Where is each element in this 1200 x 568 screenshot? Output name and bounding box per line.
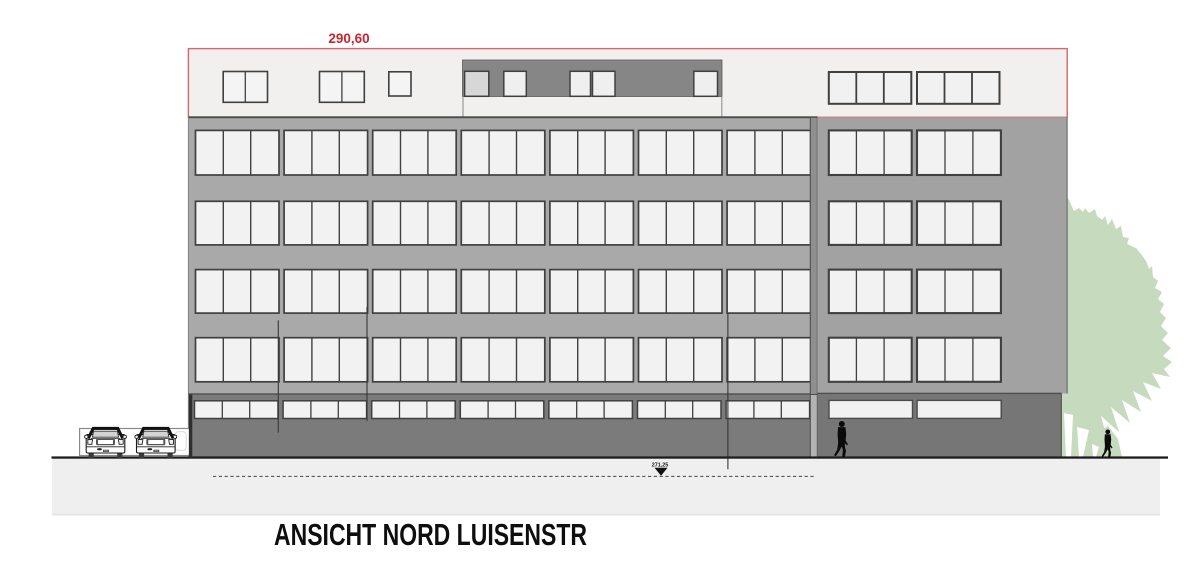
svg-text:290,60: 290,60 (328, 31, 369, 46)
svg-text:ANSICHT NORD LUISENSTR: ANSICHT NORD LUISENSTR (274, 518, 587, 552)
svg-text:271,25: 271,25 (652, 463, 669, 469)
